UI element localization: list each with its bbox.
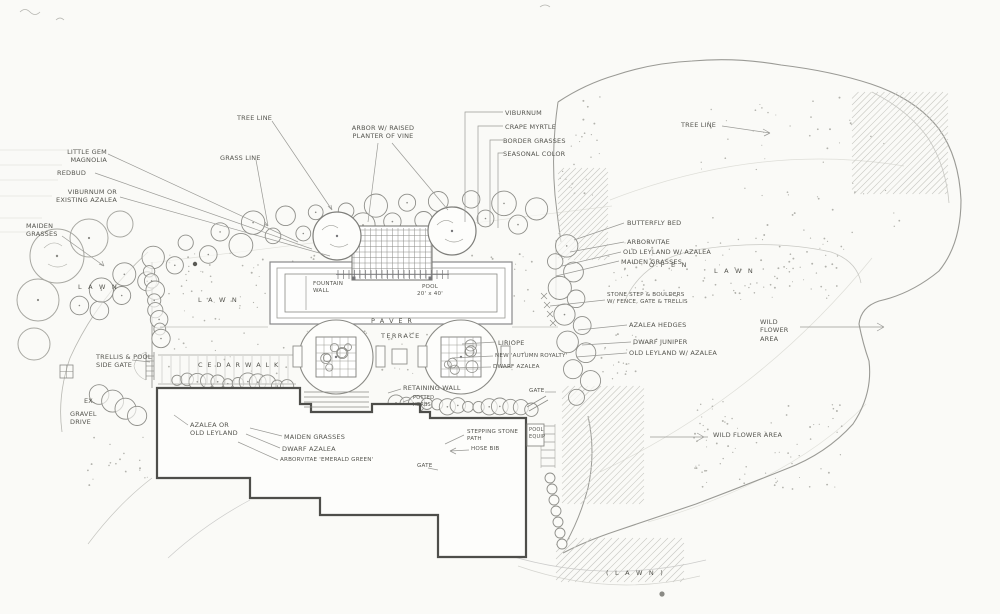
- label-little-gem-magnolia: LITTLE GEM MAGNOLIA: [37, 148, 107, 165]
- label-lawn-left-1: L A W N: [78, 283, 119, 291]
- label-arbor: ARBOR W/ RAISED PLANTER OF VINE: [343, 124, 423, 141]
- label-arborvitae-emerald: ARBORVITAE 'EMERALD GREEN': [280, 457, 373, 464]
- label-stone-step: STONE STEP & BOULDERS W/ FENCE, GATE & T…: [607, 292, 688, 307]
- label-open: O P E N: [649, 261, 689, 269]
- label-seasonal-color: SEASONAL COLOR: [503, 150, 565, 158]
- label-ex: EX.: [84, 397, 95, 405]
- label-azalea-old-leyland: AZALEA OR OLD LEYLAND: [190, 421, 238, 438]
- tree-line-blob: [554, 60, 961, 582]
- label-pool: POOL 20' x 40': [405, 284, 455, 299]
- label-stepping-stone-path: STEPPING STONE PATH: [467, 429, 518, 444]
- label-dwarf-azalea-center: DWARF AZALEA: [493, 364, 540, 371]
- plan-marker-dot: [193, 262, 197, 266]
- label-potted-herbs: POTTED HERBS: [413, 395, 434, 408]
- label-lawn-right: L A W N: [714, 267, 755, 275]
- label-azalea-hedges: AZALEA HEDGES: [629, 321, 686, 329]
- label-redbud: REDBUD: [57, 169, 86, 177]
- hatch-shading: [556, 92, 948, 582]
- label-gravel-drive: GRAVEL DRIVE: [70, 410, 97, 427]
- label-viburnum-existing: VIBURNUM OR EXISTING AZALEA: [35, 188, 117, 205]
- label-maiden-grasses-left: MAIDEN GRASSES: [26, 222, 58, 239]
- label-maiden-grasses-bottom: MAIDEN GRASSES: [284, 433, 345, 441]
- label-arborvitae: ARBORVITAE: [627, 238, 670, 246]
- label-liriope: LIRIOPE: [498, 339, 525, 347]
- label-lawn-left-2: L A W N: [198, 296, 239, 304]
- label-retaining-wall: RETAINING WALL: [403, 384, 461, 392]
- plan-drawing: [0, 0, 1000, 614]
- landscape-plan-canvas: LITTLE GEM MAGNOLIA REDBUD VIBURNUM OR E…: [0, 0, 1000, 614]
- label-gate-lower: GATE: [417, 463, 432, 470]
- stray-dot: [659, 591, 664, 596]
- label-tree-line-left: TREE LINE: [237, 114, 272, 122]
- label-viburnum-top: VIBURNUM: [505, 109, 542, 117]
- label-cedar-walk: C E D A R W A L K: [198, 361, 280, 369]
- label-tree-line-right: TREE LINE: [681, 121, 716, 129]
- label-lawn-bottom: ( L A W N ): [606, 569, 665, 577]
- label-hose-bib: HOSE BIB: [471, 446, 499, 453]
- label-paver: P A V E R: [371, 317, 413, 325]
- label-trellis-pool-side-gate: TRELLIS & POOL SIDE GATE: [96, 353, 152, 370]
- label-pool-equip: POOL EQUIP: [529, 427, 545, 440]
- label-butterfly-bed: BUTTERFLY BED: [627, 219, 681, 227]
- label-dwarf-azalea-bottom: DWARF AZALEA: [282, 445, 336, 453]
- utility-box: [60, 365, 73, 378]
- label-gate-upper: GATE: [529, 388, 544, 395]
- label-old-leyland-azalea-1: OLD LEYLAND W/ AZALEA: [623, 248, 711, 256]
- label-grass-line: GRASS LINE: [220, 154, 261, 162]
- margin-scribbles: [20, 5, 550, 20]
- label-new-autumn-royalty: NEW 'AUTUMN ROYALTY': [495, 353, 567, 360]
- label-wild-flower-area-2: WILD FLOWER AREA: [713, 431, 782, 439]
- stepping-stones: [545, 473, 567, 549]
- label-dwarf-juniper: DWARF JUNIPER: [633, 338, 687, 346]
- label-crape-myrtle: CRAPE MYRTLE: [505, 123, 556, 131]
- label-wild-flower-area-1: WILD FLOWER AREA: [760, 318, 789, 343]
- label-border-grasses: BORDER GRASSES: [503, 137, 566, 145]
- label-fountain-wall: FOUNTAIN WALL: [313, 281, 343, 296]
- label-terrace: TERRACE: [381, 332, 421, 340]
- label-old-leyland-azalea-2: OLD LEYLAND W/ AZALEA: [629, 349, 717, 357]
